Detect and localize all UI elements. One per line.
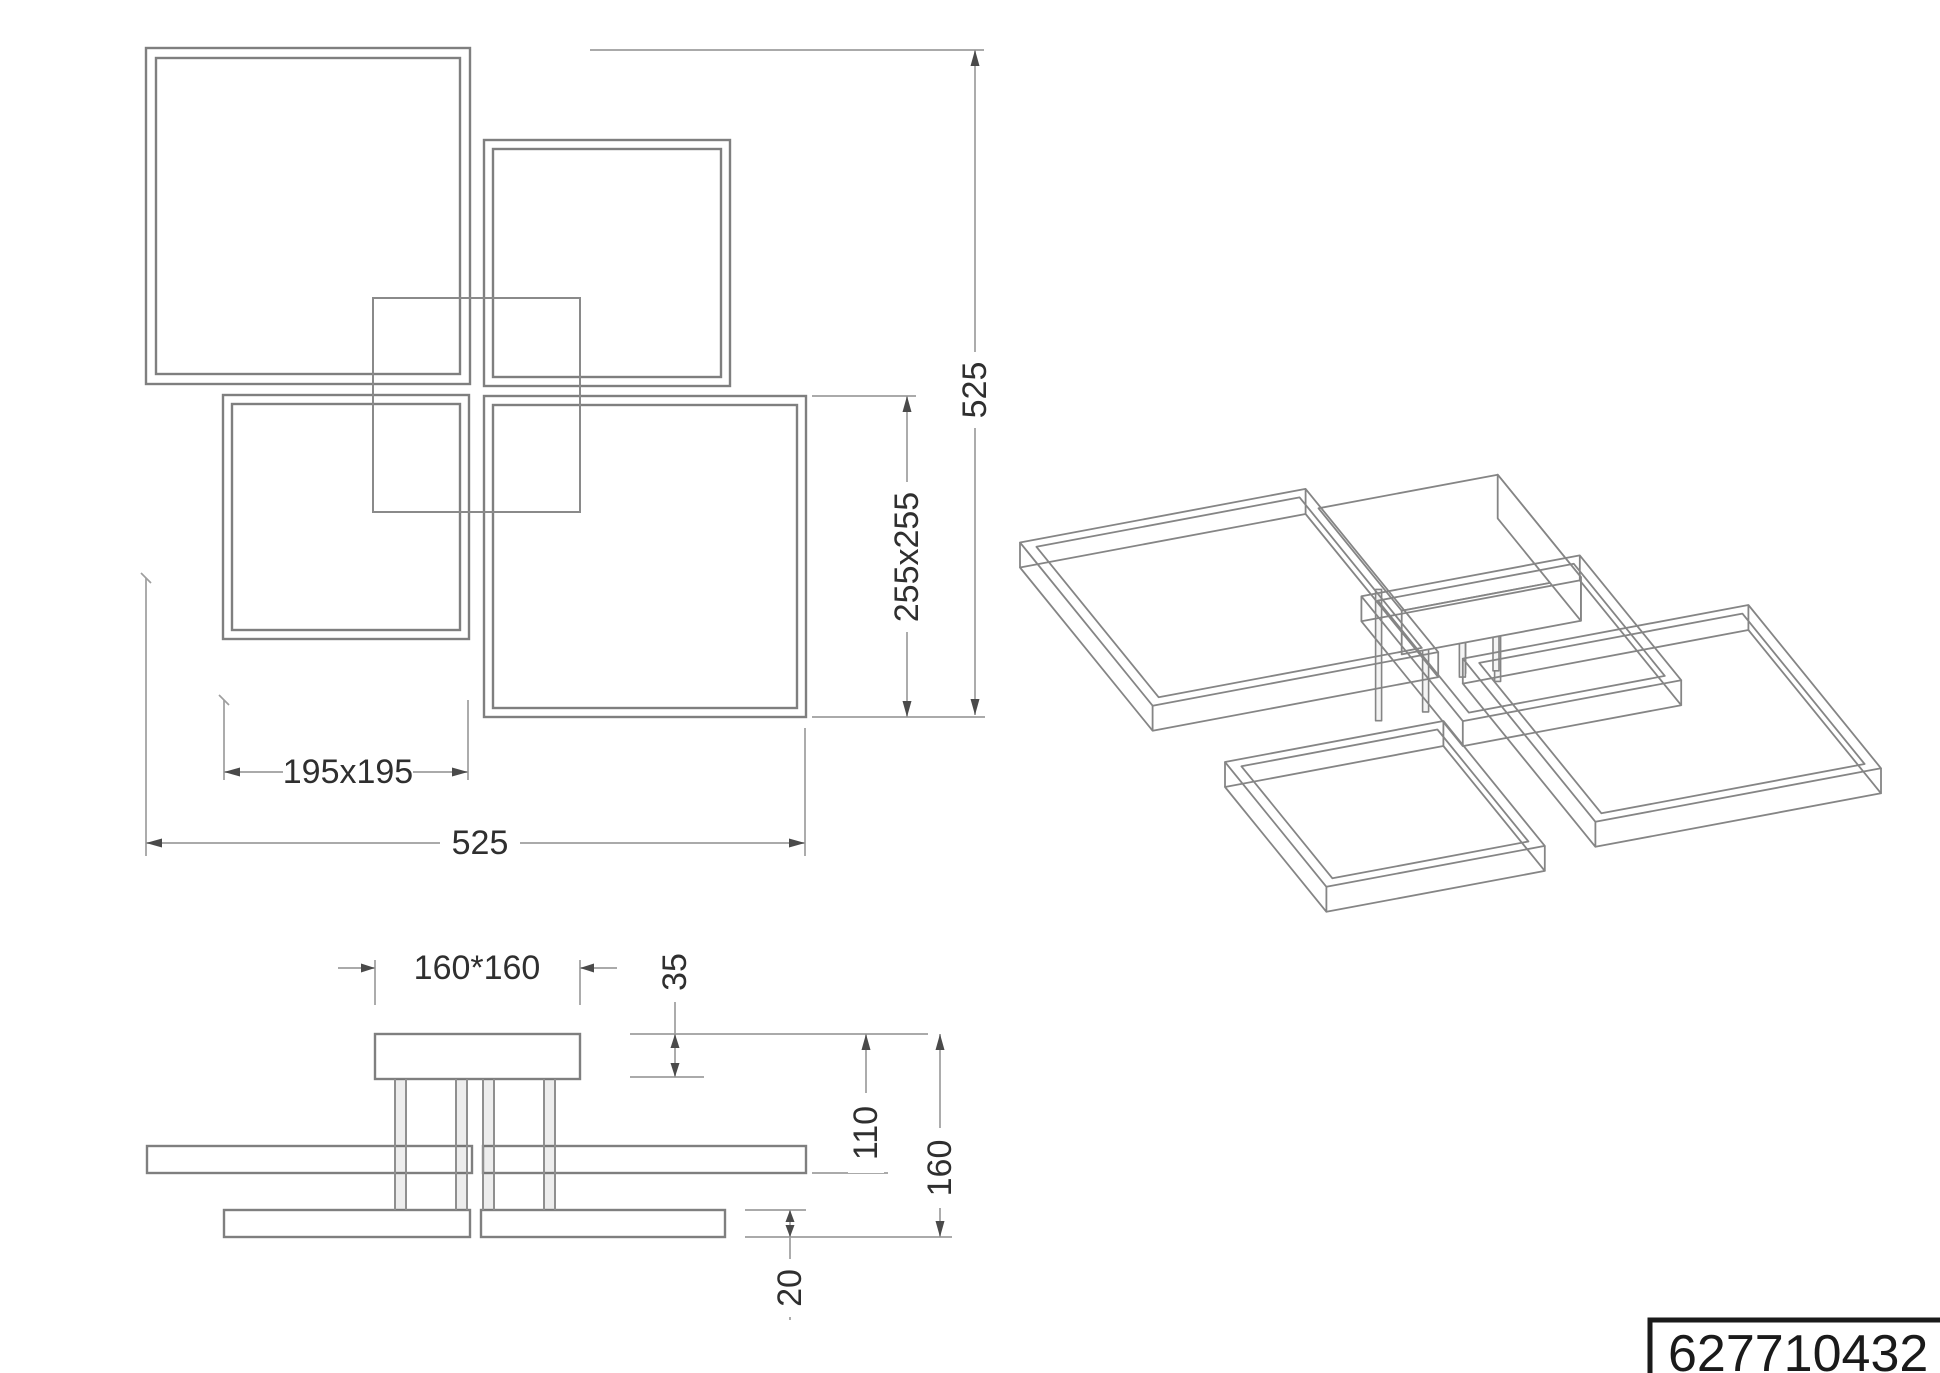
- dim-arrow-down: [936, 1221, 945, 1237]
- plan-frame-d-outer: [484, 396, 806, 717]
- dim-label-small-frames: 195x195: [283, 753, 413, 791]
- dim-label-total-height: 525: [956, 362, 994, 419]
- side-rods: [395, 1079, 555, 1210]
- dim-arrow-up: [786, 1210, 795, 1222]
- iso-frame-c-bottom: [1225, 746, 1545, 912]
- dim-arrow-right: [452, 768, 468, 777]
- dim-arrow-up: [671, 1034, 680, 1048]
- plan-view: 195x195 525 255x255 525: [141, 48, 994, 862]
- plan-frame-c-inner: [232, 404, 460, 630]
- dim-arrow-down: [903, 701, 912, 717]
- plan-frame-b-outer: [484, 140, 730, 386]
- technical-drawing-sheet: 195x195 525 255x255 525: [0, 0, 1940, 1373]
- side-upper-right-bar: [483, 1146, 806, 1173]
- dim-arrow-up: [936, 1034, 945, 1050]
- plan-frame-b-inner: [493, 149, 721, 377]
- side-lower-left-bar: [224, 1210, 470, 1237]
- iso-frame-c-inner: [1241, 730, 1528, 879]
- drawing-canvas: 195x195 525 255x255 525: [0, 0, 1940, 1373]
- dim-label-canopy-height: 35: [656, 953, 694, 991]
- isometric-view: [1020, 475, 1881, 912]
- dim-label-large-frames: 255x255: [888, 492, 926, 622]
- iso-frame-d-outer: [1463, 605, 1881, 822]
- dim-arrow-down: [671, 1063, 680, 1077]
- part-number-box: 627710432: [1650, 1320, 1940, 1373]
- part-number: 627710432: [1668, 1325, 1928, 1373]
- dim-label-canopy: 160*160: [414, 949, 541, 987]
- plan-frame-c-outer: [223, 395, 469, 639]
- dim-arrow-down: [971, 699, 980, 715]
- dim-label-total-drop: 160: [921, 1140, 959, 1197]
- side-upper-left-bar: [147, 1146, 472, 1173]
- dim-arrow-down: [786, 1225, 795, 1237]
- dim-label-profile-height: 20: [771, 1269, 809, 1307]
- iso-frame-d-bottom: [1463, 630, 1881, 847]
- plan-frame-a-outer: [146, 48, 470, 384]
- dim-label-upper-drop: 110: [847, 1106, 885, 1160]
- dim-arrow-up: [862, 1034, 871, 1050]
- dim-arrow-right: [789, 839, 805, 848]
- dim-arrow-left: [146, 839, 162, 848]
- dim-arrow-up: [971, 50, 980, 66]
- side-lower-right-bar: [481, 1210, 725, 1237]
- side-view: 160*160 35 110 160: [147, 942, 959, 1320]
- dim-arrow-left: [580, 964, 594, 973]
- side-canopy: [375, 1034, 580, 1079]
- dim-label-total-width: 525: [452, 824, 509, 862]
- dim-arrow-right: [361, 964, 375, 973]
- plan-frame-a-inner: [156, 58, 460, 374]
- plan-frame-d-inner: [493, 405, 797, 708]
- dim-arrow-up: [903, 396, 912, 412]
- dim-arrow-left: [224, 768, 240, 777]
